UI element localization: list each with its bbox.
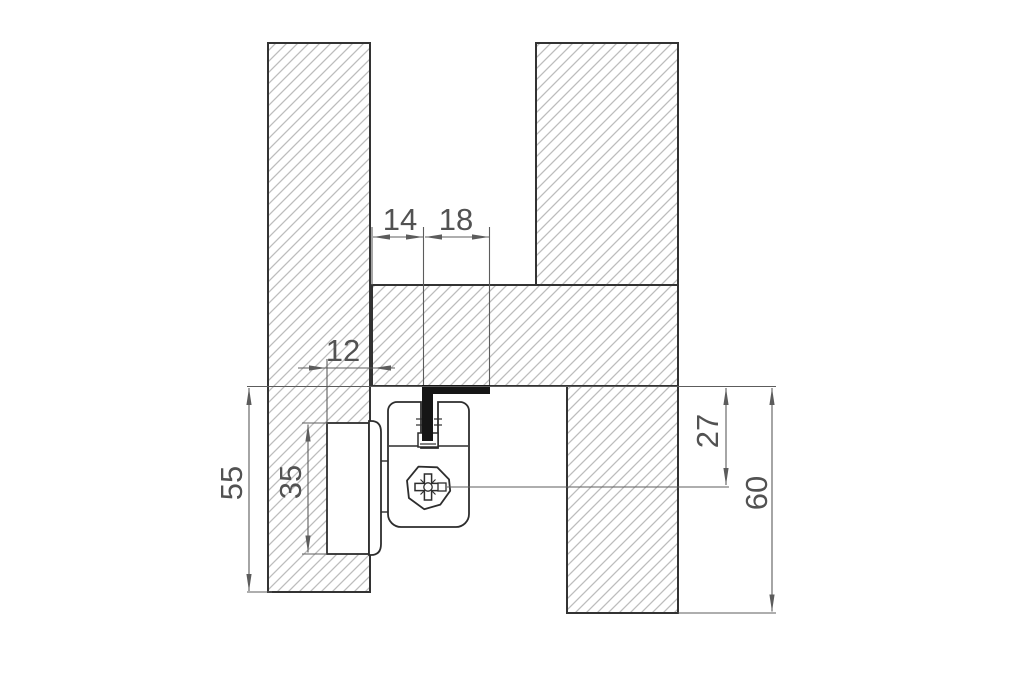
screw-center bbox=[424, 483, 432, 491]
bottom-right-panel bbox=[567, 386, 678, 613]
mounting-disc bbox=[369, 421, 381, 555]
dim-label-60: 60 bbox=[739, 476, 774, 510]
dim-label-27: 27 bbox=[690, 414, 725, 448]
dim-label-14: 14 bbox=[383, 202, 417, 237]
drawing-svg: 14 18 12 55 35 27 60 bbox=[0, 0, 1024, 681]
technical-drawing: 14 18 12 55 35 27 60 bbox=[0, 0, 1024, 681]
dim-label-18: 18 bbox=[439, 202, 473, 237]
dim-label-12: 12 bbox=[326, 333, 360, 368]
screw-arm-cap bbox=[438, 483, 446, 491]
dim-label-55: 55 bbox=[214, 466, 249, 500]
top-right-panel bbox=[536, 43, 678, 285]
recess-pocket bbox=[327, 423, 369, 554]
middle-horizontal-panel bbox=[372, 285, 678, 386]
dim-label-35: 35 bbox=[273, 465, 308, 499]
